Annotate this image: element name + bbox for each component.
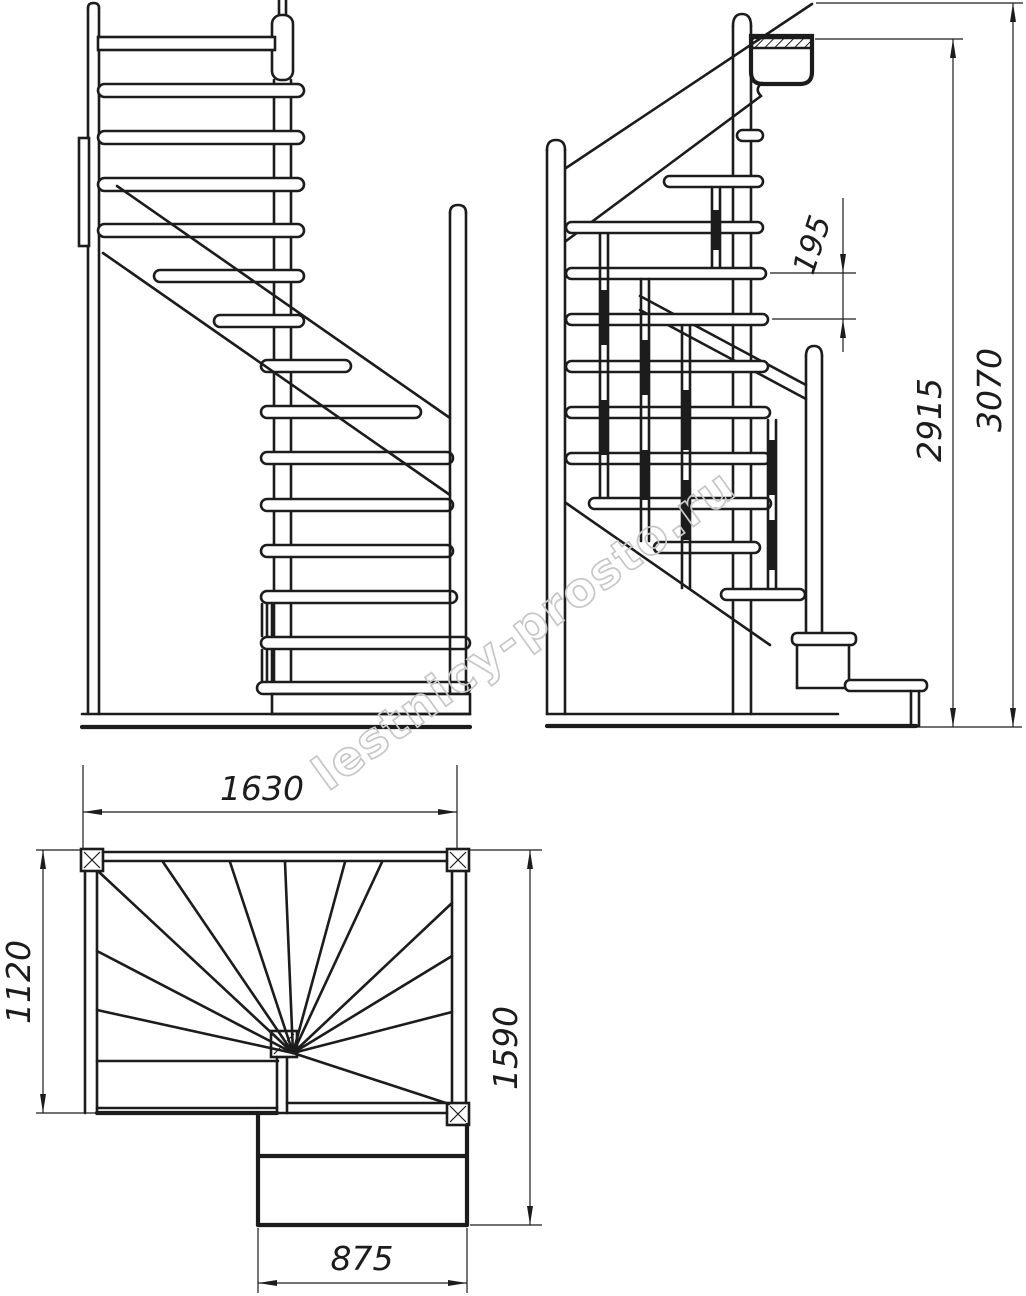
staircase-technical-drawing: lestnicy-prosto.ru 195 2915 3070 1630 bbox=[0, 0, 1026, 1296]
front-wall-plate bbox=[79, 138, 89, 246]
dim-label-2915: 2915 bbox=[910, 378, 949, 462]
dim-label-1630: 1630 bbox=[220, 769, 304, 808]
dim-label-1120: 1120 bbox=[0, 940, 38, 1024]
dim-label-3070: 3070 bbox=[970, 348, 1009, 432]
dim-label-875: 875 bbox=[331, 1239, 394, 1278]
dim-label-1590: 1590 bbox=[486, 1006, 525, 1090]
blueprint-page: lestnicy-prosto.ru 195 2915 3070 1630 bbox=[0, 0, 1026, 1296]
